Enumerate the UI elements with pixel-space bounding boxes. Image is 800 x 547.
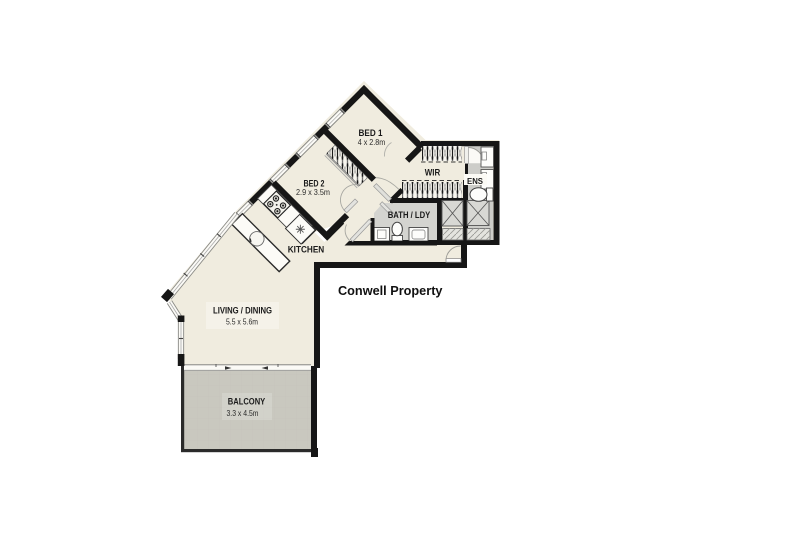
svg-text:Conwell Property: Conwell Property <box>338 283 443 298</box>
svg-text:BATH / LDY: BATH / LDY <box>388 210 431 221</box>
svg-text:LIVING / DINING: LIVING / DINING <box>213 306 272 317</box>
svg-text:5.5 x 5.6m: 5.5 x 5.6m <box>226 318 258 327</box>
svg-text:3.3 x 4.5m: 3.3 x 4.5m <box>227 409 259 418</box>
svg-text:ENS: ENS <box>467 176 483 186</box>
svg-text:KITCHEN: KITCHEN <box>288 245 325 256</box>
svg-text:4 x 2.8m: 4 x 2.8m <box>358 138 386 147</box>
svg-text:2.9 x 3.5m: 2.9 x 3.5m <box>296 188 330 197</box>
svg-text:BALCONY: BALCONY <box>228 397 266 408</box>
svg-text:WIR: WIR <box>425 168 441 178</box>
